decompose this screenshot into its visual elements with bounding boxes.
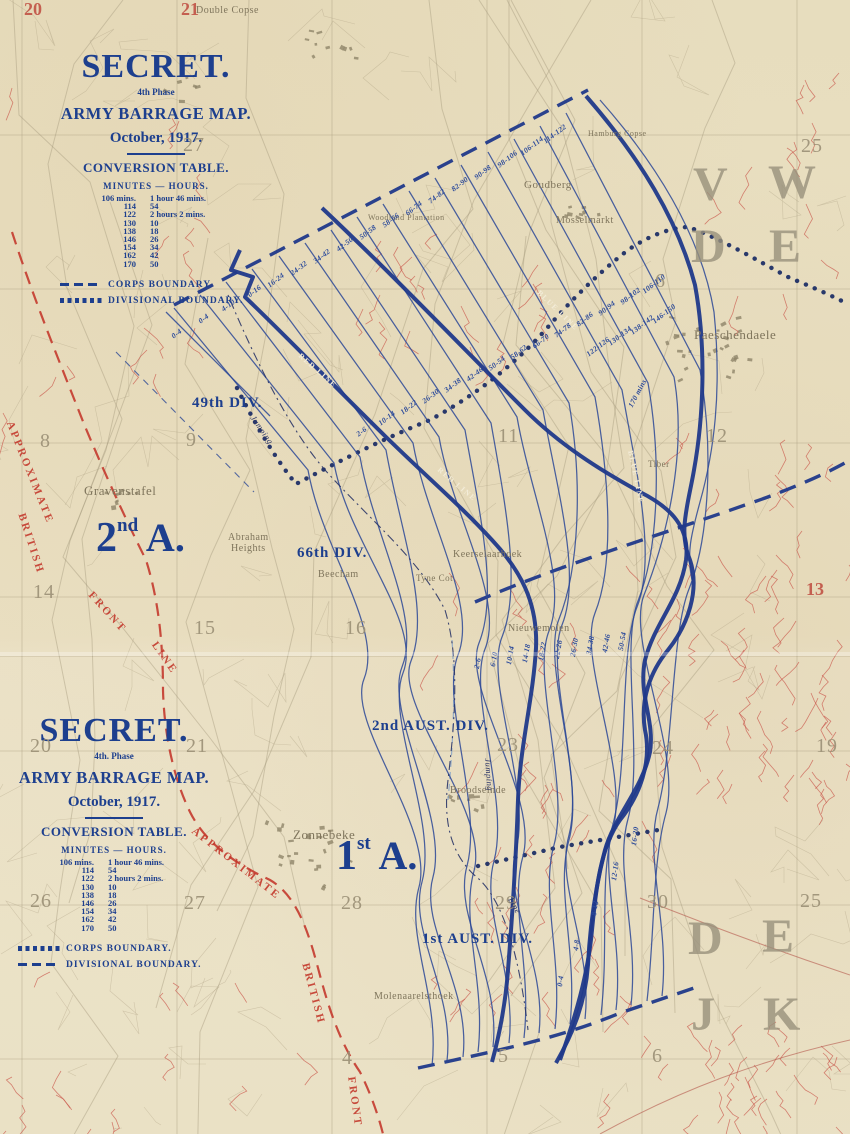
barrage-time-label: 12-16 bbox=[610, 861, 620, 881]
place-name: Keerselaarhoek bbox=[453, 550, 522, 561]
place-name: Abraham Heights bbox=[228, 533, 269, 554]
minutes-value: 130 bbox=[58, 219, 136, 227]
divider bbox=[127, 153, 185, 155]
grid-square-letter: W bbox=[768, 158, 816, 208]
grid-square-number: 27 bbox=[184, 893, 206, 914]
barrage-time-label: 50-54 bbox=[617, 631, 628, 651]
col-separator: — bbox=[155, 181, 165, 191]
col-separator: — bbox=[113, 845, 123, 855]
secret-heading: SECRET. bbox=[16, 712, 212, 750]
grid-square-number: 6 bbox=[652, 1046, 663, 1067]
objective-line-label: BLUE LINE bbox=[536, 289, 580, 332]
divisional-boundary-symbol bbox=[60, 298, 102, 303]
conversion-row: 13818 bbox=[16, 891, 212, 899]
place-name: Woodland Plantation bbox=[368, 214, 445, 222]
legend-label: DIVISIONAL BOUNDARY. bbox=[66, 960, 201, 970]
grid-square-number: 15 bbox=[194, 618, 216, 639]
minutes-value: 170 bbox=[58, 260, 136, 268]
barrage-time-label: 66-70 bbox=[531, 333, 551, 351]
title-panel-top: SECRET. 4th Phase ARMY BARRAGE MAP. Octo… bbox=[58, 48, 254, 309]
legend-label: CORPS BOUNDARY. bbox=[108, 280, 214, 290]
barrage-time-label: 16-20 bbox=[630, 826, 640, 846]
hours-value: 34 bbox=[136, 243, 246, 251]
front-line-text: FRONT bbox=[345, 1076, 364, 1128]
col-hours: HOURS. bbox=[127, 845, 167, 855]
barrage-time-label: 90-98 bbox=[473, 164, 493, 182]
army-label-part: st bbox=[357, 833, 371, 854]
grid-square-number: 25 bbox=[801, 136, 823, 157]
minutes-value: 130 bbox=[16, 883, 94, 891]
col-minutes: MINUTES bbox=[61, 845, 110, 855]
barrage-time-label: 2-6 bbox=[473, 657, 483, 669]
minutes-value: 122 bbox=[16, 874, 94, 882]
grid-square-number: 21 bbox=[186, 736, 208, 757]
barrage-time-label: 0-4 bbox=[170, 327, 183, 340]
army-label-part: nd bbox=[117, 515, 138, 536]
hours-value: 50 bbox=[94, 924, 204, 932]
map-date: October, 1917. bbox=[16, 794, 212, 811]
front-line-text: BRITISH bbox=[299, 962, 327, 1026]
jumping-off-line-label: Line bbox=[506, 896, 522, 915]
barrage-time-label: 18-22 bbox=[399, 399, 419, 417]
hours-value: 1 hour 46 mins. bbox=[136, 194, 246, 202]
conversion-row: 16242 bbox=[58, 251, 254, 259]
grid-square-number: 16 bbox=[345, 618, 367, 639]
place-name: Zonnebeke bbox=[293, 828, 355, 842]
barrage-time-label: 138-142 bbox=[629, 314, 655, 337]
grid-square-letter: D bbox=[691, 222, 726, 272]
front-line-text: BRITISH bbox=[15, 512, 46, 576]
base-map-layer bbox=[0, 0, 850, 1134]
hours-value: 54 bbox=[94, 866, 204, 874]
hours-value: 10 bbox=[94, 883, 204, 891]
grid-square-number: 20 bbox=[30, 736, 52, 757]
barrage-time-label: 82-86 bbox=[575, 311, 595, 329]
conversion-row: 15434 bbox=[58, 243, 254, 251]
barrage-time-label: 14-18 bbox=[521, 643, 532, 663]
hours-value: 18 bbox=[94, 891, 204, 899]
army-label: 1st A. bbox=[336, 834, 417, 878]
corps-boundary-symbol bbox=[18, 946, 60, 951]
grid-square-number: 30 bbox=[647, 892, 669, 913]
hours-value: 2 hours 2 mins. bbox=[136, 210, 246, 218]
place-name: Double Copse bbox=[196, 6, 259, 17]
grid-square-number: 24 bbox=[652, 738, 674, 759]
barrage-time-label: 98-102 bbox=[619, 286, 642, 306]
conversion-columns: MINUTES — HOURS. bbox=[16, 845, 212, 855]
conversion-row: 106 mins.1 hour 46 mins. bbox=[16, 858, 212, 866]
place-name: Nieuwemolen bbox=[508, 624, 570, 635]
grid-square-number: 19 bbox=[816, 736, 838, 757]
grid-square-number: 23 bbox=[497, 735, 519, 756]
barrage-time-label: 34-42 bbox=[312, 248, 332, 266]
barrage-time-label: 42-46 bbox=[601, 633, 612, 653]
barrage-time-label: 114-122 bbox=[542, 123, 568, 145]
legend-label: DIVISIONAL BOUNDARY. bbox=[108, 296, 243, 306]
minutes-value: 114 bbox=[58, 202, 136, 210]
barrage-time-label: 6-10 bbox=[489, 651, 499, 667]
barrage-time-label: 146-150 bbox=[651, 303, 677, 326]
grid-square-number-red: 20 bbox=[24, 0, 42, 19]
conversion-row: 14626 bbox=[16, 899, 212, 907]
map-title: ARMY BARRAGE MAP. bbox=[58, 104, 254, 124]
minutes-value: 154 bbox=[58, 243, 136, 251]
hours-value: 26 bbox=[94, 899, 204, 907]
barrage-time-label: 0-4 bbox=[197, 312, 210, 325]
grid-square-number: 6 bbox=[655, 271, 666, 292]
army-label-part: A. bbox=[138, 515, 185, 560]
place-name: Hamburg Copse bbox=[588, 130, 647, 138]
army-label: 2nd A. bbox=[96, 516, 185, 560]
barrage-map-sheet: SECRET. 4th Phase ARMY BARRAGE MAP. Octo… bbox=[0, 0, 850, 1134]
barrage-time-label: 82-90 bbox=[450, 176, 470, 194]
front-line-text: FRONT bbox=[85, 590, 128, 636]
place-name: Broodseinde bbox=[450, 786, 506, 797]
barrage-time-label: 10-14 bbox=[377, 410, 397, 428]
map-date: October, 1917. bbox=[58, 130, 254, 147]
conversion-rows: 106 mins.1 hour 46 mins.114541222 hours … bbox=[58, 194, 254, 268]
conversion-row: 14626 bbox=[58, 235, 254, 243]
grid-square-number: 12 bbox=[706, 426, 728, 447]
barrage-lines-layer bbox=[0, 0, 850, 1134]
legend-corps-boundary: CORPS BOUNDARY. bbox=[18, 941, 212, 957]
barrage-time-label: 16-24 bbox=[266, 272, 286, 290]
division-label: 1st AUST. DIV. bbox=[422, 932, 533, 948]
minutes-value: 162 bbox=[58, 251, 136, 259]
objective-line-label: BLUE LINE bbox=[626, 450, 645, 505]
hours-value: 54 bbox=[136, 202, 246, 210]
conversion-table-title: CONVERSION TABLE. bbox=[16, 824, 212, 840]
conversion-columns: MINUTES — HOURS. bbox=[58, 181, 254, 191]
barrage-time-label: 74-78 bbox=[553, 322, 573, 340]
barrage-time-label: 170 mins bbox=[627, 378, 648, 409]
legend: CORPS BOUNDARY. DIVISIONAL BOUNDARY. bbox=[58, 277, 254, 309]
army-label-part: 1 bbox=[336, 833, 357, 879]
place-name: Tiber bbox=[648, 460, 670, 469]
minutes-value: 146 bbox=[58, 235, 136, 243]
barrage-time-label: 22-26 bbox=[553, 639, 564, 659]
conversion-row: 13010 bbox=[16, 883, 212, 891]
corps-boundary-symbol bbox=[60, 283, 102, 287]
barrage-time-label: 0-4 bbox=[556, 975, 565, 987]
jumping-off-line-label: Jumping bbox=[483, 758, 494, 791]
place-name: Mosselmarkt bbox=[556, 216, 614, 227]
minutes-value: 138 bbox=[16, 891, 94, 899]
secret-heading: SECRET. bbox=[58, 48, 254, 86]
phase-label: 4th Phase bbox=[58, 87, 254, 97]
front-line-text: APPROXIMATE bbox=[189, 826, 283, 903]
grid-square-number: 11 bbox=[498, 426, 519, 447]
place-name: Molenaarelsthoek bbox=[374, 992, 454, 1003]
grid-square-number: 26 bbox=[30, 891, 52, 912]
grid-square-number-red: 21 bbox=[181, 0, 199, 19]
front-line-text: APPROXIMATE bbox=[3, 420, 55, 526]
barrage-time-label: 42-46 bbox=[465, 366, 485, 384]
grid-square-number: 5 bbox=[498, 1046, 509, 1067]
barrage-time-label: 26-30 bbox=[569, 637, 580, 657]
grid-square-letter: V bbox=[693, 160, 728, 210]
hours-value: 50 bbox=[136, 260, 246, 268]
hours-value: 1 hour 46 mins. bbox=[94, 858, 204, 866]
barrage-time-label: 106-110 bbox=[641, 273, 667, 295]
grid-square-number: 29 bbox=[495, 893, 517, 914]
place-name: Paeschendaele bbox=[694, 328, 776, 342]
conversion-table-title: CONVERSION TABLE. bbox=[58, 160, 254, 176]
grid-square-letter: E bbox=[762, 912, 794, 962]
conversion-row: 15434 bbox=[16, 907, 212, 915]
hours-value: 10 bbox=[136, 219, 246, 227]
minutes-value: 170 bbox=[16, 924, 94, 932]
conversion-rows: 106 mins.1 hour 46 mins.114541222 hours … bbox=[16, 858, 212, 932]
hours-value: 42 bbox=[136, 251, 246, 259]
division-label: 66th DIV. bbox=[297, 546, 367, 562]
grid-square-number: 25 bbox=[800, 891, 822, 912]
barrage-time-label: 18-22 bbox=[537, 641, 548, 661]
barrage-time-label: 4-10 bbox=[220, 298, 237, 313]
place-name: Beecham bbox=[318, 570, 359, 581]
minutes-value: 106 mins. bbox=[58, 194, 136, 202]
barrage-time-label: 10-16 bbox=[243, 284, 263, 302]
minutes-value: 154 bbox=[16, 907, 94, 915]
grid-square-number: 14 bbox=[33, 582, 55, 603]
hours-value: 26 bbox=[136, 235, 246, 243]
legend: CORPS BOUNDARY. DIVISIONAL BOUNDARY. bbox=[16, 941, 212, 973]
hours-value: 2 hours 2 mins. bbox=[94, 874, 204, 882]
barrage-time-label: 122-126 bbox=[585, 336, 611, 359]
barrage-time-label: 50-54 bbox=[487, 355, 507, 373]
barrage-time-label: 58-62 bbox=[509, 344, 529, 362]
barrage-time-label: 50-58 bbox=[358, 224, 378, 242]
hours-value: 42 bbox=[94, 915, 204, 923]
col-hours: HOURS. bbox=[169, 181, 209, 191]
legend-divisional-boundary: DIVISIONAL BOUNDARY. bbox=[18, 957, 212, 973]
barrage-time-label: 106-114 bbox=[519, 135, 545, 157]
conversion-row: 1222 hours 2 mins. bbox=[16, 874, 212, 882]
objective-line-label: RED LINE bbox=[297, 352, 338, 389]
conversion-row: 13010 bbox=[58, 219, 254, 227]
barrage-time-label: 26-30 bbox=[421, 388, 441, 406]
grid-square-letter: J bbox=[691, 990, 715, 1040]
barrage-time-label: 74-82 bbox=[427, 188, 447, 206]
place-name: Goudberg bbox=[524, 180, 572, 192]
grid-square-number: 8 bbox=[40, 431, 51, 452]
place-name: Gravenstafel bbox=[84, 484, 156, 498]
conversion-row: 13818 bbox=[58, 227, 254, 235]
minutes-value: 138 bbox=[58, 227, 136, 235]
barrage-time-label: 8-12 bbox=[590, 900, 600, 916]
minutes-value: 122 bbox=[58, 210, 136, 218]
jumping-off-line-label: Jumping bbox=[249, 414, 275, 446]
place-name: Tyne Cot bbox=[416, 574, 453, 583]
grid-square-letter: D bbox=[688, 914, 723, 964]
grid-square-letter: E bbox=[769, 222, 801, 272]
barrage-time-label: 42-50 bbox=[335, 236, 355, 254]
divisional-boundary-symbol bbox=[18, 963, 60, 967]
barrage-time-label: 2-6 bbox=[355, 425, 368, 438]
grid-square-number: 4 bbox=[342, 1048, 353, 1069]
objective-line-label: RED LINE bbox=[436, 466, 478, 503]
barrage-time-label: 34-38 bbox=[585, 635, 596, 655]
conversion-row: 1222 hours 2 mins. bbox=[58, 210, 254, 218]
legend-label: CORPS BOUNDARY. bbox=[66, 944, 172, 954]
conversion-row: 17050 bbox=[16, 924, 212, 932]
barrage-time-label: 34-38 bbox=[443, 377, 463, 395]
conversion-row: 106 mins.1 hour 46 mins. bbox=[58, 194, 254, 202]
conversion-row: 16242 bbox=[16, 915, 212, 923]
legend-corps-boundary: CORPS BOUNDARY. bbox=[60, 277, 254, 293]
minutes-value: 114 bbox=[16, 866, 94, 874]
front-line-text: LINE bbox=[149, 640, 180, 677]
minutes-value: 146 bbox=[16, 899, 94, 907]
title-panel-bottom: SECRET. 4th. Phase ARMY BARRAGE MAP. Oct… bbox=[16, 712, 212, 973]
grid-square-letter: K bbox=[763, 990, 800, 1040]
divider bbox=[85, 817, 143, 819]
hours-value: 34 bbox=[94, 907, 204, 915]
barrage-time-label: 4-8 bbox=[572, 939, 581, 951]
hours-value: 18 bbox=[136, 227, 246, 235]
grid-square-number: 27 bbox=[183, 135, 205, 156]
legend-divisional-boundary: DIVISIONAL BOUNDARY. bbox=[60, 293, 254, 309]
map-title: ARMY BARRAGE MAP. bbox=[16, 768, 212, 788]
barrage-time-label: 24-32 bbox=[289, 260, 309, 278]
barrage-time-label: 66-74 bbox=[404, 200, 424, 218]
division-label: 49th DIV. bbox=[192, 396, 262, 412]
barrage-time-label: 90-94 bbox=[597, 300, 617, 318]
grid-square-number-red: 13 bbox=[806, 580, 824, 599]
division-label: 2nd AUST. DIV. bbox=[372, 719, 489, 735]
conversion-row: 17050 bbox=[58, 260, 254, 268]
army-label-part: A. bbox=[371, 833, 418, 878]
army-label-part: 2 bbox=[96, 515, 117, 561]
grid-square-number: 28 bbox=[341, 893, 363, 914]
barrage-time-label: 130-134 bbox=[607, 325, 633, 348]
minutes-value: 162 bbox=[16, 915, 94, 923]
grid-square-number: 9 bbox=[186, 430, 197, 451]
minutes-value: 106 mins. bbox=[16, 858, 94, 866]
conversion-row: 11454 bbox=[58, 202, 254, 210]
barrage-time-label: 10-14 bbox=[505, 645, 516, 665]
barrage-time-label: 98-106 bbox=[496, 149, 519, 169]
col-minutes: MINUTES bbox=[103, 181, 152, 191]
conversion-row: 11454 bbox=[16, 866, 212, 874]
phase-label: 4th. Phase bbox=[16, 751, 212, 761]
barrage-time-label: 58-66 bbox=[381, 212, 401, 230]
